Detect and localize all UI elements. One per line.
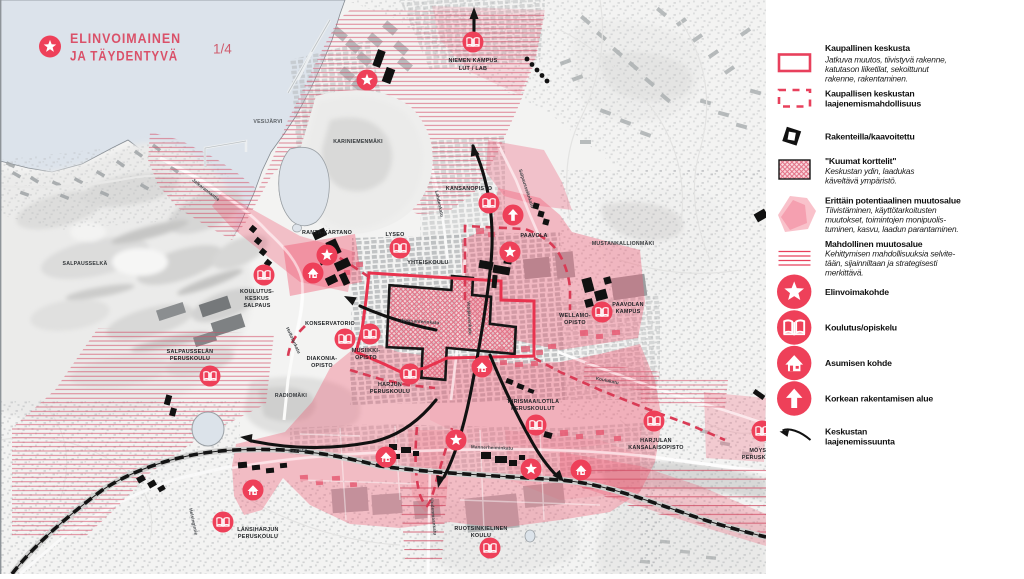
svg-text:Rautatie: Rautatie — [288, 447, 308, 453]
svg-text:RUOTSINKIELINEN: RUOTSINKIELINEN — [454, 526, 507, 532]
svg-text:WELLAMO-: WELLAMO- — [559, 313, 591, 319]
svg-text:NIEMEN KAMPUS: NIEMEN KAMPUS — [448, 58, 497, 64]
svg-text:käveltävä ympäristö.: käveltävä ympäristö. — [825, 176, 897, 186]
svg-text:PERUSKOULU: PERUSKOULU — [238, 534, 278, 540]
svg-text:PERUSKOULU: PERUSKOULU — [170, 356, 210, 362]
svg-text:TIIRISMAA/LOTILA: TIIRISMAA/LOTILA — [507, 399, 560, 405]
svg-text:HARJULAN: HARJULAN — [640, 438, 672, 444]
svg-text:LYSEO: LYSEO — [385, 232, 404, 238]
svg-text:KOULU: KOULU — [471, 533, 491, 539]
svg-text:"Kuumat korttelit": "Kuumat korttelit" — [825, 156, 896, 166]
svg-text:KARINIEMENMÄKI: KARINIEMENMÄKI — [333, 138, 383, 145]
svg-text:Rakenteilla/kaavoitettu: Rakenteilla/kaavoitettu — [825, 132, 915, 142]
svg-text:OPISTO: OPISTO — [311, 363, 333, 369]
svg-text:laajenemissuunta: laajenemissuunta — [825, 437, 895, 447]
svg-text:JA TÄYDENTYVÄ: JA TÄYDENTYVÄ — [70, 49, 178, 64]
svg-text:Kaupallinen keskusta: Kaupallinen keskusta — [825, 43, 910, 53]
svg-text:RANTA-KARTANO: RANTA-KARTANO — [302, 230, 352, 236]
svg-text:Asumisen kohde: Asumisen kohde — [825, 358, 892, 368]
svg-text:Koulutus/opiskelu: Koulutus/opiskelu — [825, 323, 897, 333]
svg-text:HARJUN: HARJUN — [378, 382, 402, 388]
svg-text:ELINVOIMAINEN: ELINVOIMAINEN — [70, 31, 181, 46]
svg-text:OPISTO: OPISTO — [564, 320, 586, 326]
svg-text:LUT / LAB: LUT / LAB — [459, 66, 487, 72]
svg-text:katutason liiketilat, sekoittu: katutason liiketilat, sekoittunut — [825, 64, 930, 74]
svg-text:1/4: 1/4 — [213, 42, 232, 57]
svg-text:Jatkuva muutos, tiivistyvä rak: Jatkuva muutos, tiivistyvä rakenne, — [824, 55, 947, 65]
svg-text:muutokset, toimintojen monipuo: muutokset, toimintojen monipuolis- — [825, 215, 946, 225]
svg-text:MUSTANKALLIONMÄKI: MUSTANKALLIONMÄKI — [592, 240, 655, 247]
svg-text:RADIOMÄKI: RADIOMÄKI — [275, 392, 308, 399]
svg-text:tuminen, kasvu, laadun paranta: tuminen, kasvu, laadun parantaminen. — [825, 224, 958, 234]
svg-text:SALPAUSSELKÄ: SALPAUSSELKÄ — [63, 260, 108, 267]
svg-text:Korkean rakentamisen alue: Korkean rakentamisen alue — [825, 394, 933, 404]
svg-text:DIAKONIA-: DIAKONIA- — [307, 356, 338, 362]
svg-text:LÄNSIHARJUN: LÄNSIHARJUN — [237, 526, 278, 533]
svg-text:KAMPUS: KAMPUS — [616, 309, 641, 315]
svg-text:PERUSKOULUT: PERUSKOULUT — [511, 406, 555, 412]
svg-text:KANSANOPISTO: KANSANOPISTO — [446, 186, 492, 192]
svg-text:Mahdollinen muutosalue: Mahdollinen muutosalue — [825, 239, 923, 249]
svg-text:tään, sijainniltaan ja strateg: tään, sijainniltaan ja strategisesti — [825, 258, 939, 268]
svg-text:merkittävä.: merkittävä. — [825, 268, 863, 278]
svg-text:PAAVOLA: PAAVOLA — [520, 233, 547, 239]
svg-text:PAAVOLAN: PAAVOLAN — [612, 302, 643, 308]
svg-text:VESIJÄRVI: VESIJÄRVI — [253, 118, 283, 125]
svg-text:Kaupallisen keskustan: Kaupallisen keskustan — [825, 89, 914, 99]
svg-text:OPISTO: OPISTO — [355, 355, 377, 361]
svg-text:Tiivistäminen, käyttötarkoitus: Tiivistäminen, käyttötarkoitusten — [825, 205, 937, 215]
svg-text:rakenne, rakentaminen.: rakenne, rakentaminen. — [825, 74, 908, 84]
svg-text:Erittäin potentiaalinen muutos: Erittäin potentiaalinen muutosalue — [825, 196, 961, 206]
svg-text:Elinvoimakohde: Elinvoimakohde — [825, 287, 889, 297]
svg-text:KANSALAISOPISTO: KANSALAISOPISTO — [628, 445, 683, 451]
svg-text:SALPAUSSELÄN: SALPAUSSELÄN — [167, 348, 214, 355]
svg-text:KOULUTUS-: KOULUTUS- — [240, 289, 274, 295]
svg-text:YHTEISKOULU: YHTEISKOULU — [407, 260, 448, 266]
svg-text:laajenemismahdollisuus: laajenemismahdollisuus — [825, 99, 921, 109]
svg-text:Keskustan: Keskustan — [825, 427, 867, 437]
svg-text:Keskustan ydin, laadukas: Keskustan ydin, laadukas — [825, 166, 914, 176]
svg-text:PERUSKOULU: PERUSKOULU — [370, 389, 410, 395]
svg-text:KESKUS: KESKUS — [245, 296, 269, 302]
svg-text:MUSIIKKI-: MUSIIKKI- — [352, 348, 380, 354]
svg-text:Kehittymisen mahdollisuuksia s: Kehittymisen mahdollisuuksia selvite- — [825, 249, 955, 259]
svg-text:SALPAUS: SALPAUS — [243, 303, 270, 309]
svg-text:KONSERVATORIO: KONSERVATORIO — [305, 321, 355, 327]
